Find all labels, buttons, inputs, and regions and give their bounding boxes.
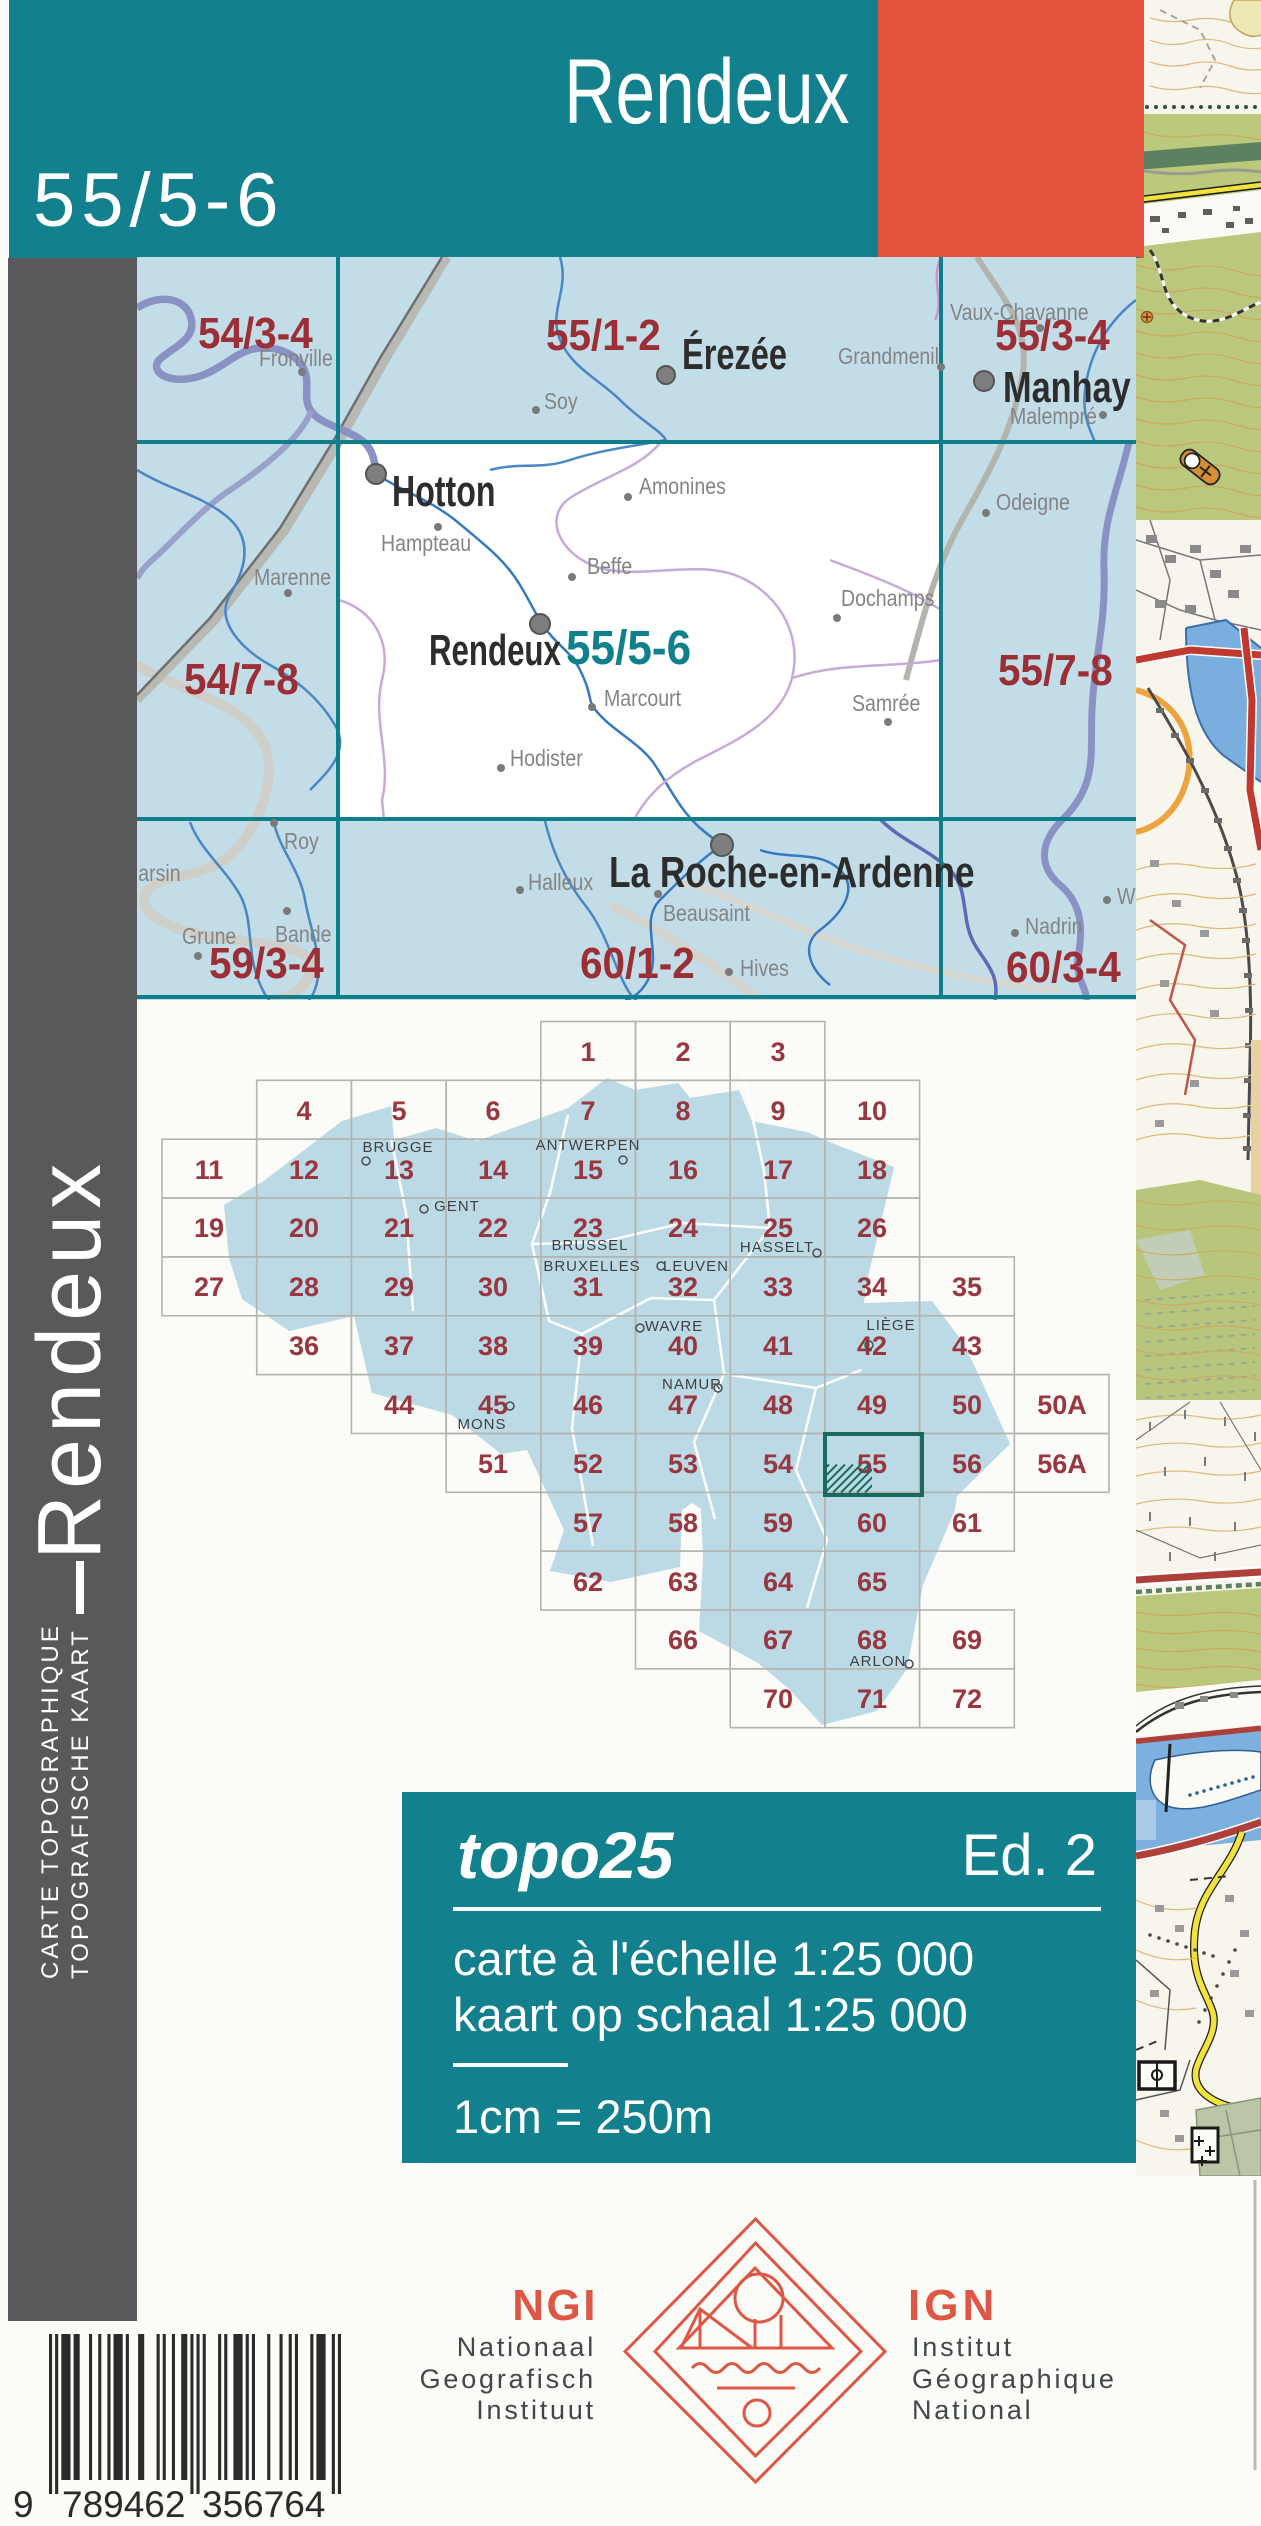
svg-text:27: 27 xyxy=(194,1272,224,1302)
svg-text:55/7-8: 55/7-8 xyxy=(998,645,1113,694)
svg-text:7: 7 xyxy=(580,1096,595,1126)
svg-text:LIÈGE: LIÈGE xyxy=(866,1317,915,1334)
svg-text:LEUVEN: LEUVEN xyxy=(663,1258,729,1275)
svg-text:41: 41 xyxy=(763,1331,793,1361)
svg-text:49: 49 xyxy=(857,1390,887,1420)
svg-text:Malempré: Malempré xyxy=(1010,404,1097,430)
svg-text:70: 70 xyxy=(763,1684,793,1714)
svg-text:Dochamps: Dochamps xyxy=(841,586,934,612)
svg-text:71: 71 xyxy=(857,1684,887,1714)
svg-text:40: 40 xyxy=(668,1331,698,1361)
svg-text:57: 57 xyxy=(573,1508,603,1538)
svg-text:61: 61 xyxy=(952,1508,982,1538)
svg-text:52: 52 xyxy=(573,1449,603,1479)
svg-text:Hotton: Hotton xyxy=(392,467,495,516)
svg-text:19: 19 xyxy=(194,1213,224,1243)
svg-text:Marenne: Marenne xyxy=(254,565,331,591)
svg-text:48: 48 xyxy=(763,1390,793,1420)
svg-text:8: 8 xyxy=(675,1096,690,1126)
svg-text:12: 12 xyxy=(289,1155,319,1185)
svg-text:11: 11 xyxy=(195,1155,224,1185)
svg-text:29: 29 xyxy=(384,1272,414,1302)
svg-text:64: 64 xyxy=(763,1567,793,1597)
svg-text:2: 2 xyxy=(675,1037,690,1067)
svg-text:9: 9 xyxy=(770,1096,785,1126)
svg-text:60: 60 xyxy=(857,1508,887,1538)
svg-text:NAMUR: NAMUR xyxy=(662,1376,722,1393)
svg-text:54: 54 xyxy=(763,1449,793,1479)
svg-text:50: 50 xyxy=(952,1390,982,1420)
svg-text:Grune: Grune xyxy=(182,924,236,950)
svg-text:Soy: Soy xyxy=(544,389,578,415)
svg-text:65: 65 xyxy=(857,1567,887,1597)
svg-text:Hampteau: Hampteau xyxy=(381,531,471,557)
svg-text:68: 68 xyxy=(857,1625,887,1655)
svg-text:La Roche-en-Ardenne: La Roche-en-Ardenne xyxy=(609,848,975,897)
svg-text:50A: 50A xyxy=(1037,1390,1087,1420)
svg-text:ANTWERPEN: ANTWERPEN xyxy=(536,1137,641,1154)
svg-text:3: 3 xyxy=(770,1037,785,1067)
svg-text:56A: 56A xyxy=(1037,1449,1087,1479)
svg-text:Beffe: Beffe xyxy=(587,554,632,580)
svg-text:Fronville: Fronville xyxy=(259,346,333,372)
svg-text:Roy: Roy xyxy=(284,829,319,855)
svg-text:Rendeux: Rendeux xyxy=(429,626,561,676)
svg-text:54/7-8: 54/7-8 xyxy=(184,654,299,703)
svg-text:Amonines: Amonines xyxy=(639,474,726,500)
svg-text:Marcourt: Marcourt xyxy=(604,686,681,712)
svg-text:10: 10 xyxy=(857,1096,887,1126)
svg-text:39: 39 xyxy=(573,1331,603,1361)
svg-text:66: 66 xyxy=(668,1625,698,1655)
svg-text:47: 47 xyxy=(668,1390,698,1420)
svg-text:Nadrin: Nadrin xyxy=(1025,914,1083,940)
svg-text:BRUSSEL: BRUSSEL xyxy=(551,1237,628,1254)
svg-text:30: 30 xyxy=(478,1272,508,1302)
svg-text:55: 55 xyxy=(857,1449,887,1479)
svg-text:Hodister: Hodister xyxy=(510,746,583,772)
svg-text:BRUGGE: BRUGGE xyxy=(362,1139,433,1156)
svg-text:6: 6 xyxy=(485,1096,500,1126)
svg-text:Samrée: Samrée xyxy=(852,691,920,717)
svg-text:44: 44 xyxy=(384,1390,414,1420)
svg-text:Beausaint: Beausaint xyxy=(663,901,750,927)
svg-text:53: 53 xyxy=(668,1449,698,1479)
svg-text:60/3-4: 60/3-4 xyxy=(1006,942,1121,991)
svg-text:28: 28 xyxy=(289,1272,319,1302)
svg-text:17: 17 xyxy=(763,1155,793,1185)
svg-text:Grandmenil: Grandmenil xyxy=(838,344,939,370)
svg-text:58: 58 xyxy=(668,1508,698,1538)
svg-text:55/1-2: 55/1-2 xyxy=(546,310,661,359)
svg-text:Vaux-Chavanne: Vaux-Chavanne xyxy=(950,300,1089,326)
svg-text:32: 32 xyxy=(668,1272,698,1302)
svg-text:34: 34 xyxy=(857,1272,887,1302)
svg-text:26: 26 xyxy=(857,1213,887,1243)
svg-text:31: 31 xyxy=(573,1272,603,1302)
svg-text:HASSELT: HASSELT xyxy=(740,1239,814,1256)
svg-text:MONS: MONS xyxy=(458,1416,507,1433)
svg-text:63: 63 xyxy=(668,1567,698,1597)
svg-text:14: 14 xyxy=(478,1155,508,1185)
svg-text:GENT: GENT xyxy=(434,1198,480,1215)
svg-text:72: 72 xyxy=(952,1684,982,1714)
svg-text:Érezée: Érezée xyxy=(682,329,787,379)
svg-text:69: 69 xyxy=(952,1625,982,1655)
svg-text:Halleux: Halleux xyxy=(528,870,593,896)
svg-text:59: 59 xyxy=(763,1508,793,1538)
svg-text:BRUXELLES: BRUXELLES xyxy=(543,1258,640,1275)
svg-text:5: 5 xyxy=(391,1096,406,1126)
svg-text:51: 51 xyxy=(478,1449,508,1479)
svg-text:36: 36 xyxy=(289,1331,319,1361)
svg-text:46: 46 xyxy=(573,1390,603,1420)
svg-text:1: 1 xyxy=(580,1037,595,1067)
svg-text:22: 22 xyxy=(478,1213,508,1243)
svg-text:Bande: Bande xyxy=(275,922,332,948)
svg-text:55/5-6: 55/5-6 xyxy=(566,620,691,674)
svg-text:13: 13 xyxy=(384,1155,414,1185)
svg-text:60/1-2: 60/1-2 xyxy=(580,938,695,987)
svg-text:24: 24 xyxy=(668,1213,698,1243)
svg-text:ARLON: ARLON xyxy=(850,1653,907,1670)
svg-text:62: 62 xyxy=(573,1567,603,1597)
svg-text:43: 43 xyxy=(952,1331,982,1361)
svg-text:4: 4 xyxy=(296,1096,311,1126)
svg-text:37: 37 xyxy=(384,1331,414,1361)
svg-text:18: 18 xyxy=(857,1155,887,1185)
svg-text:33: 33 xyxy=(763,1272,793,1302)
svg-text:Odeigne: Odeigne xyxy=(996,490,1070,516)
svg-text:67: 67 xyxy=(763,1625,793,1655)
svg-text:38: 38 xyxy=(478,1331,508,1361)
svg-text:21: 21 xyxy=(384,1213,414,1243)
svg-text:42: 42 xyxy=(857,1331,887,1361)
svg-text:Hives: Hives xyxy=(740,956,789,982)
svg-text:Marsin: Marsin xyxy=(137,861,181,887)
svg-text:15: 15 xyxy=(573,1155,603,1185)
svg-text:56: 56 xyxy=(952,1449,982,1479)
svg-text:20: 20 xyxy=(289,1213,319,1243)
svg-text:WAVRE: WAVRE xyxy=(645,1318,703,1335)
svg-text:35: 35 xyxy=(952,1272,982,1302)
svg-text:16: 16 xyxy=(668,1155,698,1185)
